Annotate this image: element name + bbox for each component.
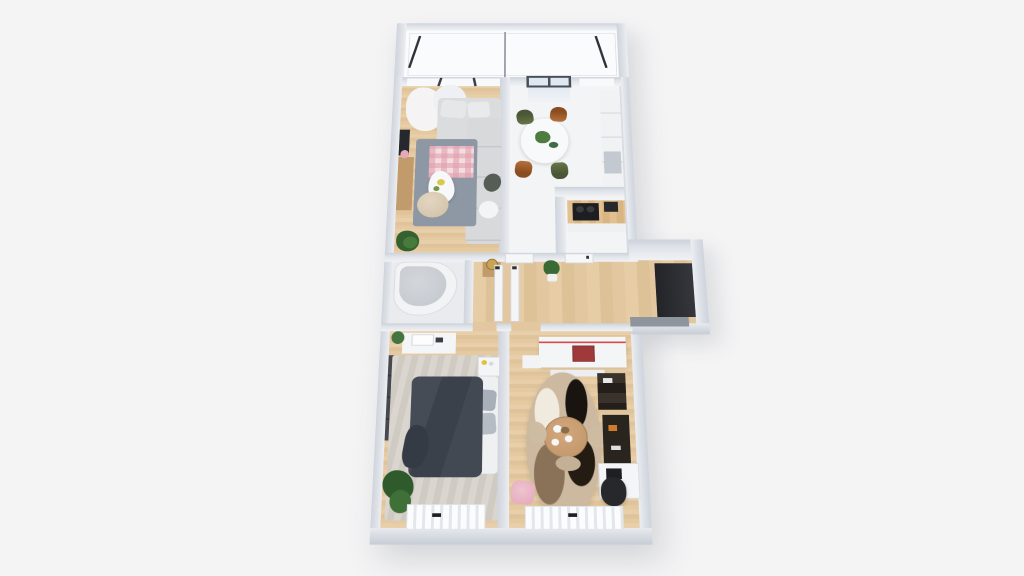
wall-bathroom-east (464, 260, 474, 323)
wall-bottom (369, 528, 652, 545)
table-centerpiece (561, 427, 570, 434)
living-wardrobe-red-stripe (539, 342, 626, 344)
glass-door-pane-1 (529, 78, 548, 86)
desk-chair-black (601, 477, 627, 506)
door-leaf-bedroom (494, 265, 503, 322)
hall-door-entry (565, 254, 594, 264)
glass-door-light (528, 87, 570, 104)
wall-rooms-north-a (381, 323, 473, 331)
kitchen-counter-front (568, 223, 626, 232)
radiator-bedroom (406, 504, 486, 530)
dining-centerpiece-plant (535, 131, 550, 143)
hall-door-kitchen (505, 254, 534, 264)
door-leaf-living (510, 265, 519, 322)
tv-console (396, 157, 414, 210)
side-table-round (478, 200, 499, 219)
floor-plan-canvas (0, 0, 1024, 576)
nightstand (478, 357, 501, 377)
nightstand-decor-white (489, 362, 494, 366)
wall-rooms-north-c (541, 323, 633, 331)
table-plate-2 (565, 435, 573, 442)
dresser-panel (411, 334, 434, 345)
cooktop-burner-1 (576, 206, 584, 212)
wall-rooms-north-b (497, 323, 512, 331)
door-handle-bedroom (495, 266, 499, 269)
wall-nook-west (555, 197, 567, 253)
kitchen-appliance (604, 151, 622, 173)
cooktop-burner-2 (586, 206, 594, 212)
radiator-living (525, 506, 624, 530)
table-plate-3 (551, 439, 559, 446)
kitchen-sink-dark (604, 202, 618, 212)
balcony-divider (504, 32, 506, 77)
window-right-frame (579, 78, 614, 86)
wall-balcony-top (397, 23, 627, 30)
living-shelf-small (522, 355, 541, 368)
radiator-bedroom-mark (432, 513, 441, 517)
hall-door-handle (586, 256, 589, 259)
tv-unit-item-white (603, 378, 613, 383)
entry-door-mat (630, 317, 689, 326)
pouf-pink (510, 480, 536, 505)
door-handle-living (512, 266, 516, 269)
wall-balcony-right (616, 23, 629, 85)
tv-unit-item-white-2 (611, 446, 621, 450)
dining-chair-rust-ne (549, 106, 567, 122)
dining-chair-green-se (550, 162, 569, 180)
entry-wardrobe-dark (654, 263, 695, 317)
dining-bowl (549, 142, 558, 148)
sofa-cushion-2 (467, 101, 490, 118)
glass-door-pane-2 (550, 78, 568, 86)
tv-unit-item-orange (608, 425, 617, 431)
radiator-living-mark (568, 513, 577, 517)
balcony-ledge (407, 33, 617, 76)
nightstand-decor-yellow (481, 360, 487, 365)
tv-unit-dark-2 (602, 415, 631, 463)
living-wardrobe-picture (572, 346, 595, 362)
hall-plant-pot (547, 274, 557, 282)
sofa-cushion-1 (440, 100, 468, 119)
floor-plan-3d-view (369, 23, 741, 554)
dresser-items-dark (436, 338, 444, 343)
wall-nook-north (555, 187, 625, 197)
